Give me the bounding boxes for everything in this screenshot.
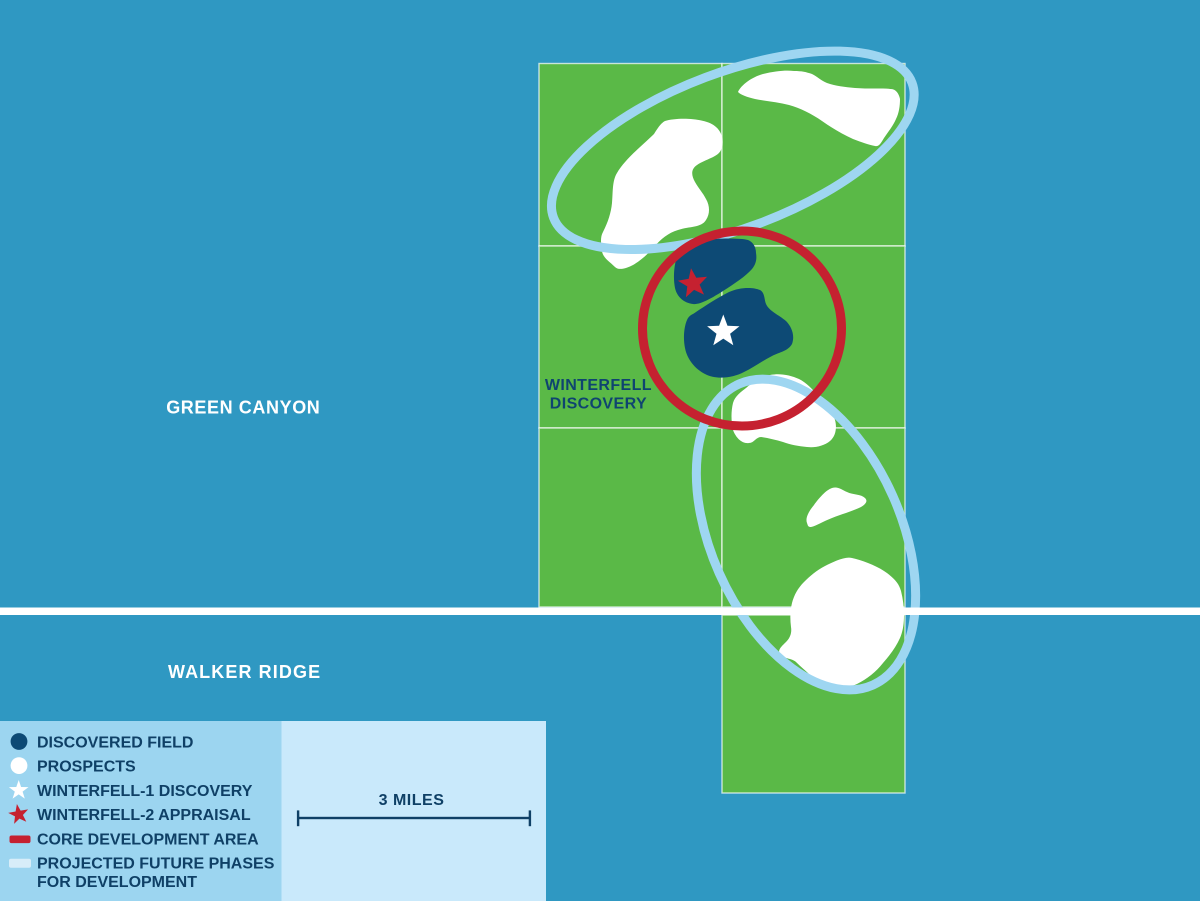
svg-text:WINTERFELL-2 APPRAISAL: WINTERFELL-2 APPRAISAL (37, 807, 251, 824)
svg-text:WALKER RIDGE: WALKER RIDGE (168, 662, 321, 682)
svg-text:FOR DEVELOPMENT: FOR DEVELOPMENT (37, 874, 197, 891)
svg-text:WINTERFELL: WINTERFELL (545, 377, 652, 394)
svg-text:PROSPECTS: PROSPECTS (37, 759, 136, 776)
svg-text:DISCOVERY: DISCOVERY (550, 395, 647, 412)
svg-text:CORE DEVELOPMENT AREA: CORE DEVELOPMENT AREA (37, 831, 259, 848)
svg-text:WINTERFELL-1 DISCOVERY: WINTERFELL-1 DISCOVERY (37, 783, 253, 800)
svg-text:PROJECTED FUTURE PHASES: PROJECTED FUTURE PHASES (37, 855, 275, 872)
svg-text:DISCOVERED FIELD: DISCOVERED FIELD (37, 735, 193, 752)
svg-text:3 MILES: 3 MILES (379, 792, 445, 809)
svg-text:GREEN CANYON: GREEN CANYON (166, 397, 320, 417)
